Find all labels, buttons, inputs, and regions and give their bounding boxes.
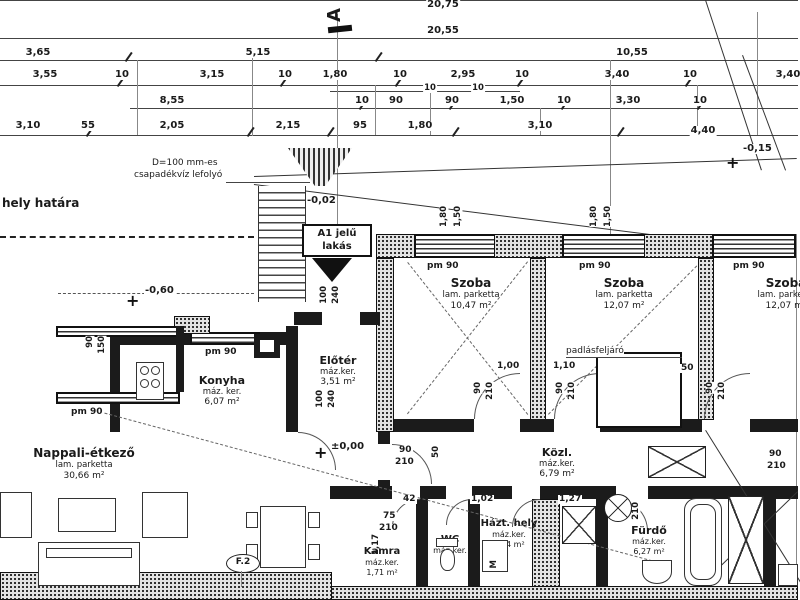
dim-label: 1,80 [407,121,434,131]
level-site: -0,15 [742,144,773,154]
floor-plan-canvas: 20,75 20,55 3,65 5,15 10,55 3,55 10 3,15… [0,0,800,600]
door-width-dim: 90 [556,382,565,394]
dim-label: 10 [114,70,130,80]
window-icon [414,234,496,258]
door-width-dim: 100 [316,390,325,408]
armchair-icon [0,492,32,538]
dim-label: 10 [423,84,437,93]
site-boundary-label: hely határa [2,196,79,210]
window-icon [562,234,646,258]
window-height-dim: 1,50 [454,206,463,227]
wall [376,258,394,432]
sink-basin-icon [260,340,274,352]
level-floor: ±0,00 [330,442,365,452]
room-furdo: Fürdő máz.ker. 6,27 m² [631,524,667,556]
dim-label: 3,40 [604,70,631,80]
wall [110,345,120,432]
section-marker-a: A [326,8,344,22]
entry-door-width: 100 [320,286,329,304]
entry-door-height: 240 [332,286,341,304]
level-marker-icon: + [126,296,139,306]
chair-icon [308,544,320,560]
burner-icon [140,379,149,388]
level-terrace: -0,60 [144,286,175,296]
window-width-dim: 1,80 [440,206,449,227]
drain-leader-line [226,182,310,183]
washbasin-icon [642,560,672,584]
wall [360,312,380,325]
wall [394,419,474,432]
door-width-dim: 90 [768,450,783,459]
wall [294,312,322,325]
wall [530,258,546,420]
door-arc [554,373,600,419]
room-nappali: Nappali-étkező lam. parketta 30,66 m² [33,446,135,481]
drain-note-line2: csapadékvíz lefolyó [134,170,222,181]
dim-label: 5,15 [245,48,272,58]
toilet-tank-icon [436,538,458,547]
door-width-dim: 90 [474,382,483,394]
dim-label: 90 [388,96,404,106]
room-eloter: Előtér máz.ker. 3,51 m² [320,354,357,388]
dim-label: 2,05 [159,121,186,131]
door-height-dim: 210 [766,462,787,471]
dim-label: 2,95 [450,70,477,80]
wall [420,486,446,499]
wall [648,486,798,499]
door-height-dim: 210 [568,382,577,400]
dim-label: 42 [402,495,417,504]
extension-line [252,48,253,136]
window-height-dim: 150 [98,336,107,354]
dim-line [0,38,798,39]
room-szoba-3: Szoba lam. parketta 12,07 m² [757,276,800,311]
drain-funnel-icon [288,148,352,186]
dim-label: 95 [352,121,368,131]
dim-total-2: 20,55 [426,26,460,36]
extension-line [137,60,138,135]
f2-marker-line [241,571,242,587]
dim-label: 3,15 [199,70,226,80]
sill-height-label: pm 90 [578,262,611,271]
window-icon [56,326,178,337]
dim-label: 3,30 [615,96,642,106]
dim-label: 3,65 [25,48,52,58]
dim-label: 3,40 [775,70,800,80]
washing-machine-label: M [490,560,499,568]
duct-shaft-icon [562,506,596,544]
dim-label: 1,00 [496,362,520,371]
door-arc [446,499,472,525]
corridor-cabinet-icon [648,446,706,478]
dim-label: 10,55 [615,48,649,58]
dim-line [0,60,798,61]
apartment-label-box: A1 jelű lakás [302,224,372,257]
attic-access-box [596,352,682,428]
dim-label: 1,02 [470,495,494,504]
burner-icon [151,379,160,388]
level-entry: -0,02 [306,196,337,206]
dim-label: 10 [471,84,485,93]
armchair-icon [142,492,188,538]
door-width-dim: 90 [706,382,715,394]
dim-label: 3,10 [527,121,554,131]
wall [494,234,564,258]
wall [330,586,798,600]
sill-height-label: pm 90 [426,262,459,271]
dim-label: 2,15 [275,121,302,131]
dim-label: 10 [682,70,698,80]
room-szoba-1: Szoba lam. parketta 10,47 m² [442,276,499,311]
sill-height-label: pm 90 [732,262,765,271]
dim-total-1: 20,75 [426,0,460,10]
dim-label: 50 [432,446,441,458]
dim-label: 10 [692,96,708,106]
sill-height-label: pm 90 [70,408,103,417]
duct-shaft-icon [728,496,764,584]
door-height-dim: 210 [486,382,495,400]
stove-icon [136,362,164,400]
room-kamra: Kamra máz.ker. 1,71 m² [364,546,401,577]
boiler-icon [604,494,632,522]
sofa-cushion-icon [46,548,132,558]
dim-label: 55 [80,121,96,131]
bathtub-inner-icon [690,504,716,580]
door-width-dim: 90 [398,446,413,455]
door-height-dim: 210 [632,502,641,520]
door-height-dim: 210 [394,458,415,467]
level-marker-icon: + [726,158,739,168]
wall [750,419,798,432]
dim-label: 10 [354,96,370,106]
room-szoba-2: Szoba lam. parketta 12,07 m² [595,276,652,311]
window-width-dim: 90 [86,336,95,348]
dim-label: 3,10 [15,121,42,131]
dim-label: 50 [680,364,695,373]
window-height-dim: 1,50 [604,206,613,227]
chair-icon [246,512,258,528]
dim-label: 1,10 [552,362,576,371]
exterior-stair-ramp [258,186,306,302]
dim-label: 10 [392,70,408,80]
dim-label: 10 [277,70,293,80]
room-kozl: Közl. máz.ker. 6,79 m² [539,446,575,480]
coffee-table-icon [58,498,116,532]
burner-icon [140,366,149,375]
dim-label: 10 [514,70,530,80]
window-icon [712,234,796,258]
door-arc [298,432,336,470]
entrance-arrow-icon [312,258,352,282]
wall [520,419,554,432]
dim-label: 1,50 [499,96,526,106]
dim-label: 1,27 [558,495,582,504]
wall [176,326,184,392]
boundary-dashed-line [0,236,254,238]
wall [378,432,390,444]
dim-line [0,0,798,1]
wall [376,234,416,258]
extension-line [375,85,376,135]
wall [286,326,298,432]
chair-icon [308,512,320,528]
wall [644,234,714,258]
door-width-dim: 75 [382,512,397,521]
f2-marker: F.2 [226,554,260,573]
door-height-dim: 240 [328,390,337,408]
small-basin-icon [778,564,798,586]
dim-label: 1,80 [322,70,349,80]
door-height-dim: 210 [378,524,399,533]
dim-line [0,85,798,86]
dim-label: 8,55 [159,96,186,106]
window-width-dim: 1,80 [590,206,599,227]
burner-icon [151,366,160,375]
dining-table-icon [260,506,306,568]
room-konyha: Konyha máz. ker. 6,07 m² [199,374,245,408]
dim-label: 4,40 [690,126,717,136]
extension-line [757,12,758,135]
dim-label: 10 [556,96,572,106]
toilet-icon [440,549,455,571]
sill-height-label: pm 90 [204,348,237,357]
dim-label: 3,55 [32,70,59,80]
dim-label: 90 [444,96,460,106]
apartment-label-line1: A1 jelű [308,228,366,241]
door-height-dim: 210 [718,382,727,400]
section-marker-bar-icon [328,25,352,33]
attic-leader-line [566,357,682,358]
apartment-label-line2: lakás [308,241,366,254]
attic-access-label: padlásfeljáró [566,346,624,357]
drain-note-line1: D=100 mm-es [152,158,218,169]
dim-line [0,135,798,136]
